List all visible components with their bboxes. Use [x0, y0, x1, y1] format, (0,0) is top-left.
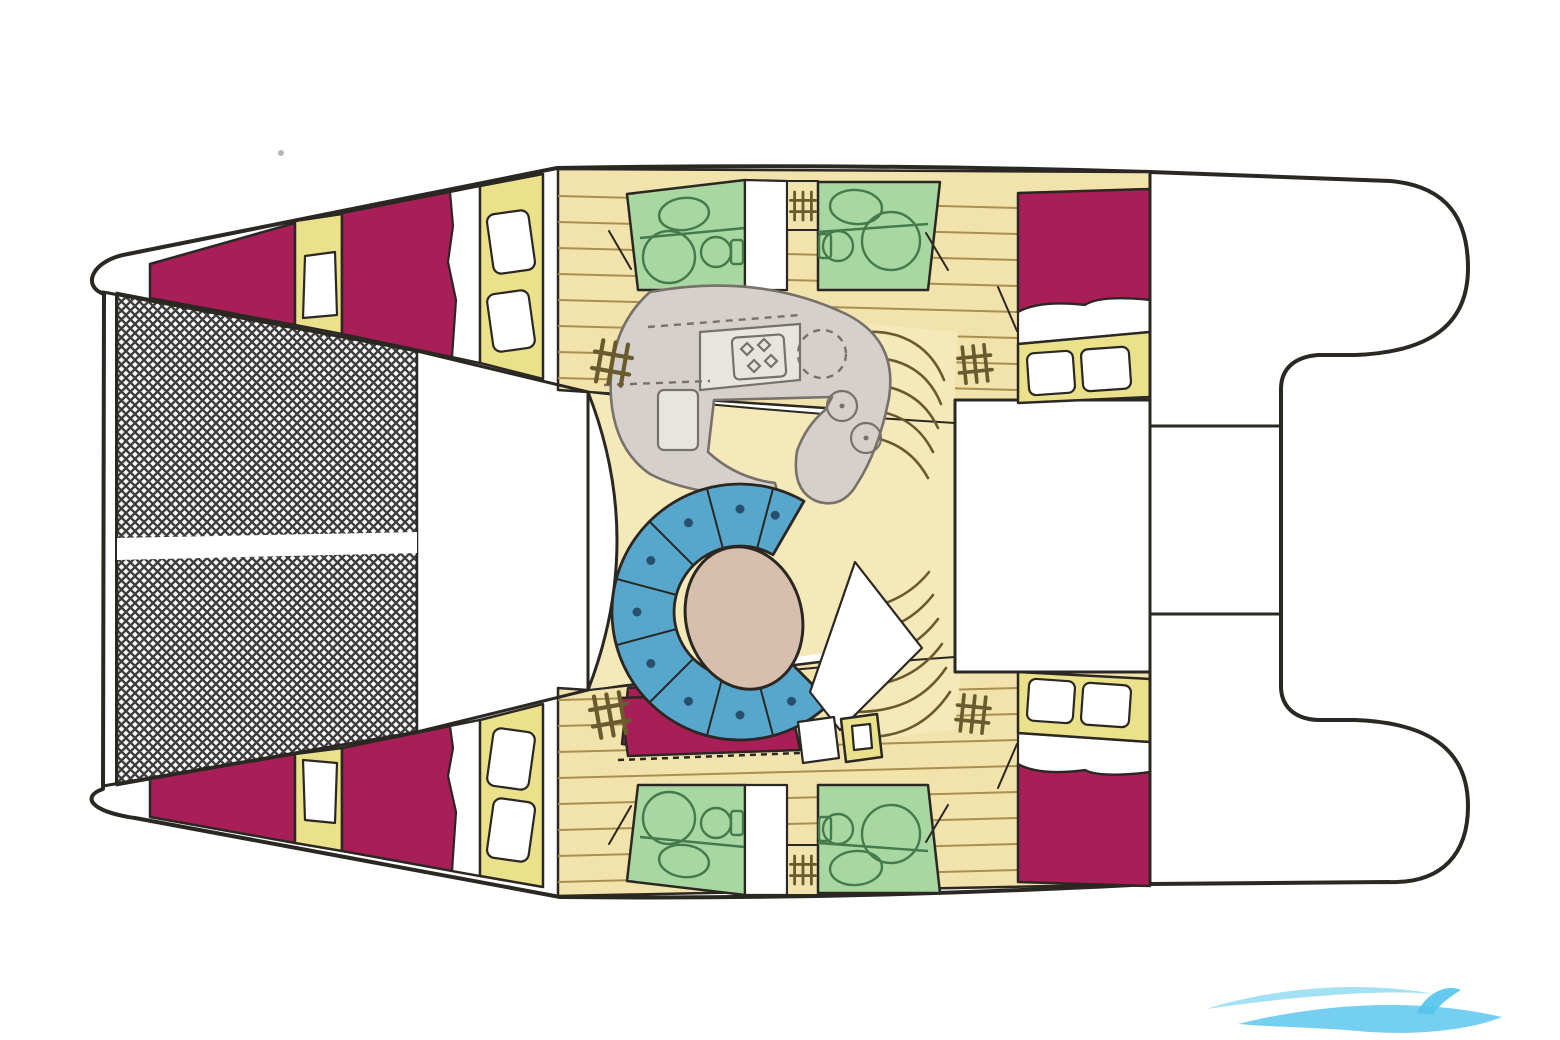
sofa-button: [736, 505, 745, 514]
watermark-wave-lower: [1238, 1005, 1502, 1033]
pillow: [486, 209, 536, 274]
bed-sheet: [448, 186, 480, 363]
sofa-button: [736, 711, 745, 720]
print-speck: [278, 150, 284, 156]
steps-icon: [790, 192, 815, 220]
galley-knob-dot: [864, 436, 869, 441]
sofa-button: [684, 518, 693, 527]
starboard-bathroom-aft: [818, 785, 940, 893]
pillow: [486, 727, 536, 790]
watermark-swoosh: [1206, 987, 1502, 1033]
trampoline-net: [116, 293, 417, 785]
starboard-bathroom-doorway: [745, 785, 787, 895]
pillow: [486, 289, 536, 352]
port-aft-cabin: [1018, 189, 1150, 403]
catamaran-deck-plan: [0, 0, 1560, 1040]
galley-fridge: [658, 390, 698, 450]
floor-plan-canvas: [0, 0, 1560, 1040]
steps-icon: [790, 856, 815, 884]
entry-step-inset: [852, 724, 872, 750]
sofa-button: [771, 511, 780, 520]
pillow: [1081, 346, 1132, 391]
starboard-aft-double-bed: [1018, 764, 1150, 886]
port-bathroom-aft: [818, 182, 940, 290]
sofa-button: [646, 659, 655, 668]
sofa-button: [684, 697, 693, 706]
aft-cockpit-deck: [955, 400, 1150, 672]
port-aft-double-bed: [1018, 189, 1150, 312]
entry-step-white: [798, 717, 839, 763]
bathroom-room: [627, 785, 745, 895]
pillow: [1027, 678, 1076, 723]
starboard-nightstand-hatch: [303, 760, 337, 823]
bathroom-room: [627, 180, 745, 290]
starboard-aft-cabin: [1018, 672, 1150, 886]
port-nightstand-hatch: [303, 252, 337, 318]
port-bathroom-doorway: [745, 180, 787, 290]
starboard-bathroom-forward: [627, 785, 745, 895]
port-bathroom-forward: [627, 180, 745, 290]
sofa-button: [787, 697, 796, 706]
pillow: [1027, 350, 1076, 395]
sofa-button: [646, 556, 655, 565]
sofa-button: [633, 608, 642, 617]
galley-knob-dot: [840, 404, 845, 409]
bed-sheet: [448, 720, 480, 876]
galley-stove: [732, 334, 787, 380]
pillow: [1081, 682, 1132, 727]
pillow: [486, 797, 536, 862]
